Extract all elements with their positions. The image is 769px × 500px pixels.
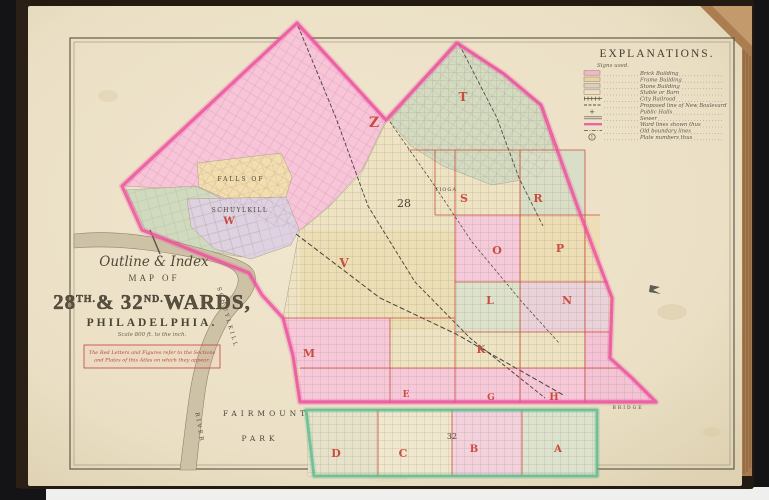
legend-item-label: Frame Building [639, 77, 682, 83]
red-note-line2: and Plates of this Atlas on which they a… [94, 358, 210, 364]
section-letter-k: K [477, 345, 486, 356]
section-letter-t: T [459, 90, 468, 104]
legend-plate-number: 1 [591, 135, 594, 140]
section-letter-c: C [399, 447, 408, 460]
legend-symbol-swatch [584, 77, 600, 82]
map-label-tioga: TIOGA [435, 187, 457, 193]
atlas-photo: ZTWSROPLNVMKEGHDCBA FALLS OFSCHUYLKILLTI… [0, 0, 769, 500]
legend-item-label: Old boundary lines [640, 129, 691, 135]
section-letter-o: O [492, 244, 502, 257]
section-letter-b: B [470, 444, 478, 455]
legend-item-label: Sewer [640, 116, 657, 122]
section-letter-v: V [338, 256, 349, 270]
section-letter-m: M [303, 347, 315, 360]
title-city: PHILADELPHIA. [87, 317, 218, 329]
map-label-park: PARK [241, 434, 278, 443]
legend-symbol-cross: + [589, 108, 595, 116]
section-letter-n: N [562, 294, 572, 307]
legend-symbol-swatch [584, 83, 600, 88]
red-note-line1: The Red Letters and Figures refer to the… [89, 350, 216, 356]
red-note-box [84, 345, 220, 368]
legend-item-label: Plate numbers thus [639, 135, 693, 141]
section-letter-w: W [222, 216, 235, 227]
map-label-bridge: BRIDGE [613, 405, 644, 411]
legend-item-label: Public Halls [639, 109, 673, 115]
section-letter-p: P [556, 242, 564, 255]
section-letter-l: L [486, 294, 494, 307]
legend-item-label: Brick Building [639, 71, 679, 77]
section-letter-d: D [331, 447, 341, 460]
map-label-schuylkill: SCHUYLKILL [212, 207, 269, 214]
section-letter-e: E [403, 390, 410, 400]
legend-item-label: Proposed line of New Boulevard [639, 103, 727, 109]
section-letter-a: A [553, 444, 562, 455]
map-label-fairmount: FAIRMOUNT [223, 409, 309, 418]
title-line2: MAP OF [129, 273, 180, 283]
legend-subtitle: Signs used. [597, 63, 629, 69]
section-letter-z: Z [369, 115, 379, 131]
legend-item-label: Stable or Barn [640, 90, 680, 96]
map-label-32: 32 [447, 432, 457, 441]
title-scale: Scale 800 ft. to the inch. [118, 332, 187, 338]
map-label-28: 28 [397, 197, 411, 210]
book-spine-edge [16, 0, 30, 488]
legend-symbol-swatch [584, 71, 600, 76]
legend-item-label: City Railroad [640, 97, 676, 103]
section-letter-r: R [533, 192, 543, 205]
section-letter-g: G [487, 393, 495, 403]
legend-item-label: Ward lines shown thus [640, 122, 701, 128]
legend-title: EXPLANATIONS. [599, 48, 714, 60]
section-letter-h: H [549, 392, 558, 403]
map-label-falls-of: FALLS OF [217, 176, 264, 183]
section-letter-s: S [460, 192, 468, 205]
legend-item-label: Stone Building [640, 84, 680, 90]
title-line1: Outline & Index [99, 254, 209, 270]
page-fore-edge [742, 20, 752, 476]
